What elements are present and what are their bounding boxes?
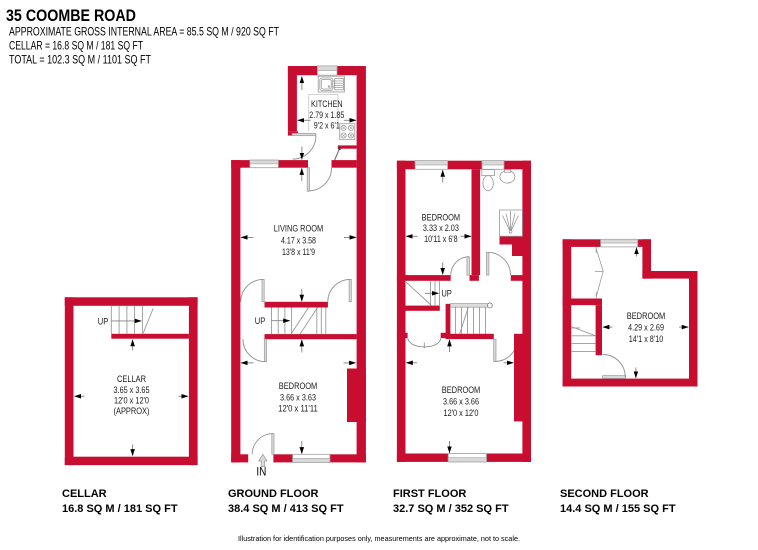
svg-text:CELLAR = 16.8 SQ M / 181 SQ FT: CELLAR = 16.8 SQ M / 181 SQ FT: [9, 38, 143, 52]
svg-text:12'0 x 12'0: 12'0 x 12'0: [444, 408, 479, 418]
svg-text:SECOND FLOOR: SECOND FLOOR: [560, 488, 649, 500]
svg-text:IN: IN: [256, 465, 266, 479]
svg-text:14'1 x 8'10: 14'1 x 8'10: [629, 334, 664, 344]
svg-text:Illustration for identificatio: Illustration for identification purposes…: [238, 534, 520, 543]
svg-text:2.79 x 1.85: 2.79 x 1.85: [309, 110, 344, 120]
svg-text:BEDROOM: BEDROOM: [627, 311, 666, 321]
svg-text:LIVING ROOM: LIVING ROOM: [274, 224, 324, 234]
svg-text:3.66 x 3.66: 3.66 x 3.66: [443, 397, 479, 407]
svg-text:APPROXIMATE GROSS INTERNAL ARE: APPROXIMATE GROSS INTERNAL AREA = 85.5 S…: [9, 24, 279, 38]
svg-text:FIRST FLOOR: FIRST FLOOR: [393, 488, 466, 500]
svg-text:10'11 x 6'8: 10'11 x 6'8: [424, 234, 458, 244]
svg-text:GROUND FLOOR: GROUND FLOOR: [228, 488, 318, 500]
svg-text:BEDROOM: BEDROOM: [442, 385, 481, 395]
svg-text:35 COOMBE ROAD: 35 COOMBE ROAD: [6, 6, 136, 25]
svg-text:4.17 x 3.58: 4.17 x 3.58: [281, 235, 316, 245]
svg-text:38.4 SQ M / 413 SQ FT: 38.4 SQ M / 413 SQ FT: [228, 503, 344, 515]
svg-text:3.66 x 3.63: 3.66 x 3.63: [280, 392, 316, 402]
svg-text:4.29 x 2.69: 4.29 x 2.69: [628, 323, 664, 333]
svg-text:CELLAR: CELLAR: [117, 374, 146, 384]
svg-text:BEDROOM: BEDROOM: [279, 381, 318, 391]
svg-text:14.4 SQ M / 155 SQ FT: 14.4 SQ M / 155 SQ FT: [560, 503, 676, 515]
svg-text:UP: UP: [255, 316, 266, 326]
svg-text:(APPROX): (APPROX): [114, 406, 150, 416]
svg-text:9'2 x 6'1: 9'2 x 6'1: [314, 121, 340, 131]
svg-text:12'0 x 11'11: 12'0 x 11'11: [278, 404, 318, 414]
svg-text:UP: UP: [441, 288, 452, 298]
svg-text:BEDROOM: BEDROOM: [422, 212, 461, 222]
svg-text:12'0 x 12'0: 12'0 x 12'0: [114, 396, 149, 406]
svg-text:32.7 SQ M / 352 SQ FT: 32.7 SQ M / 352 SQ FT: [393, 503, 509, 515]
svg-text:3.65 x 3.65: 3.65 x 3.65: [114, 385, 150, 395]
svg-text:TOTAL = 102.3 SQ M / 1101 SQ F: TOTAL = 102.3 SQ M / 1101 SQ FT: [9, 52, 151, 66]
svg-text:KITCHEN: KITCHEN: [311, 99, 343, 109]
svg-text:CELLAR: CELLAR: [62, 488, 107, 500]
svg-text:3.33 x 2.03: 3.33 x 2.03: [423, 223, 459, 233]
svg-text:16.8 SQ M / 181 SQ FT: 16.8 SQ M / 181 SQ FT: [62, 503, 178, 515]
svg-text:13'8 x 11'9: 13'8 x 11'9: [282, 247, 315, 257]
svg-text:UP: UP: [98, 317, 109, 327]
